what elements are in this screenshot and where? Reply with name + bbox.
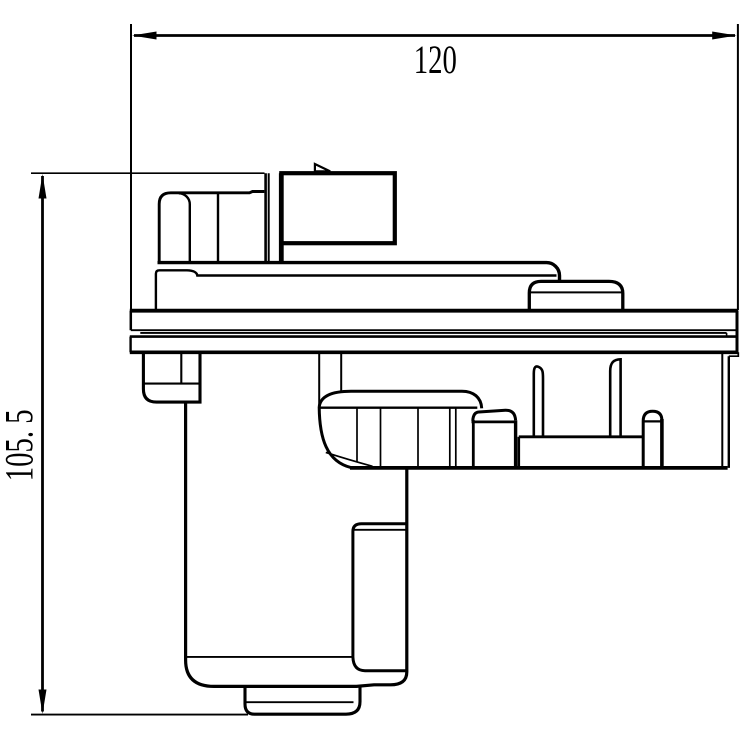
svg-text:105. 5: 105. 5 — [0, 409, 42, 481]
svg-text:120: 120 — [414, 38, 457, 83]
